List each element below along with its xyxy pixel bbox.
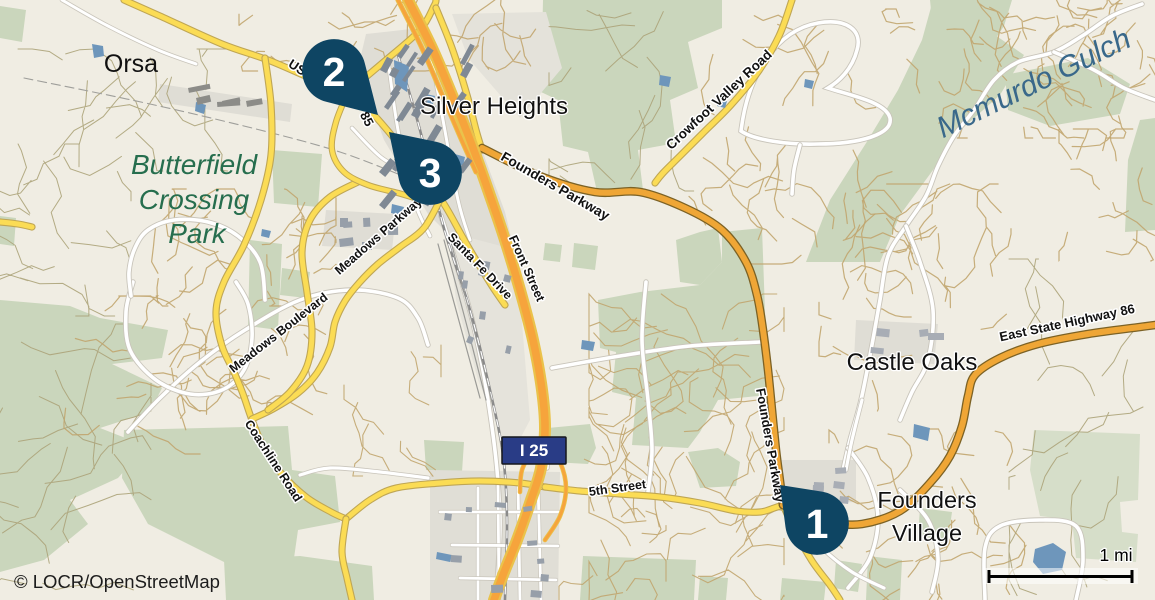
svg-text:© LOCR/OpenStreetMap: © LOCR/OpenStreetMap [14, 571, 220, 592]
svg-text:Butterfield: Butterfield [131, 149, 258, 180]
svg-text:Village: Village [892, 520, 962, 546]
svg-text:Park: Park [168, 218, 228, 249]
svg-text:Silver Heights: Silver Heights [420, 93, 568, 120]
svg-text:Crossing: Crossing [139, 184, 250, 215]
svg-text:Founders: Founders [877, 487, 976, 513]
svg-text:2: 2 [323, 49, 346, 95]
svg-text:1 mi: 1 mi [1099, 545, 1132, 565]
svg-text:Orsa: Orsa [104, 50, 158, 78]
svg-text:3: 3 [419, 150, 442, 196]
svg-text:I 25: I 25 [520, 441, 548, 460]
svg-text:1: 1 [806, 501, 829, 547]
svg-text:Castle Oaks: Castle Oaks [847, 349, 978, 376]
